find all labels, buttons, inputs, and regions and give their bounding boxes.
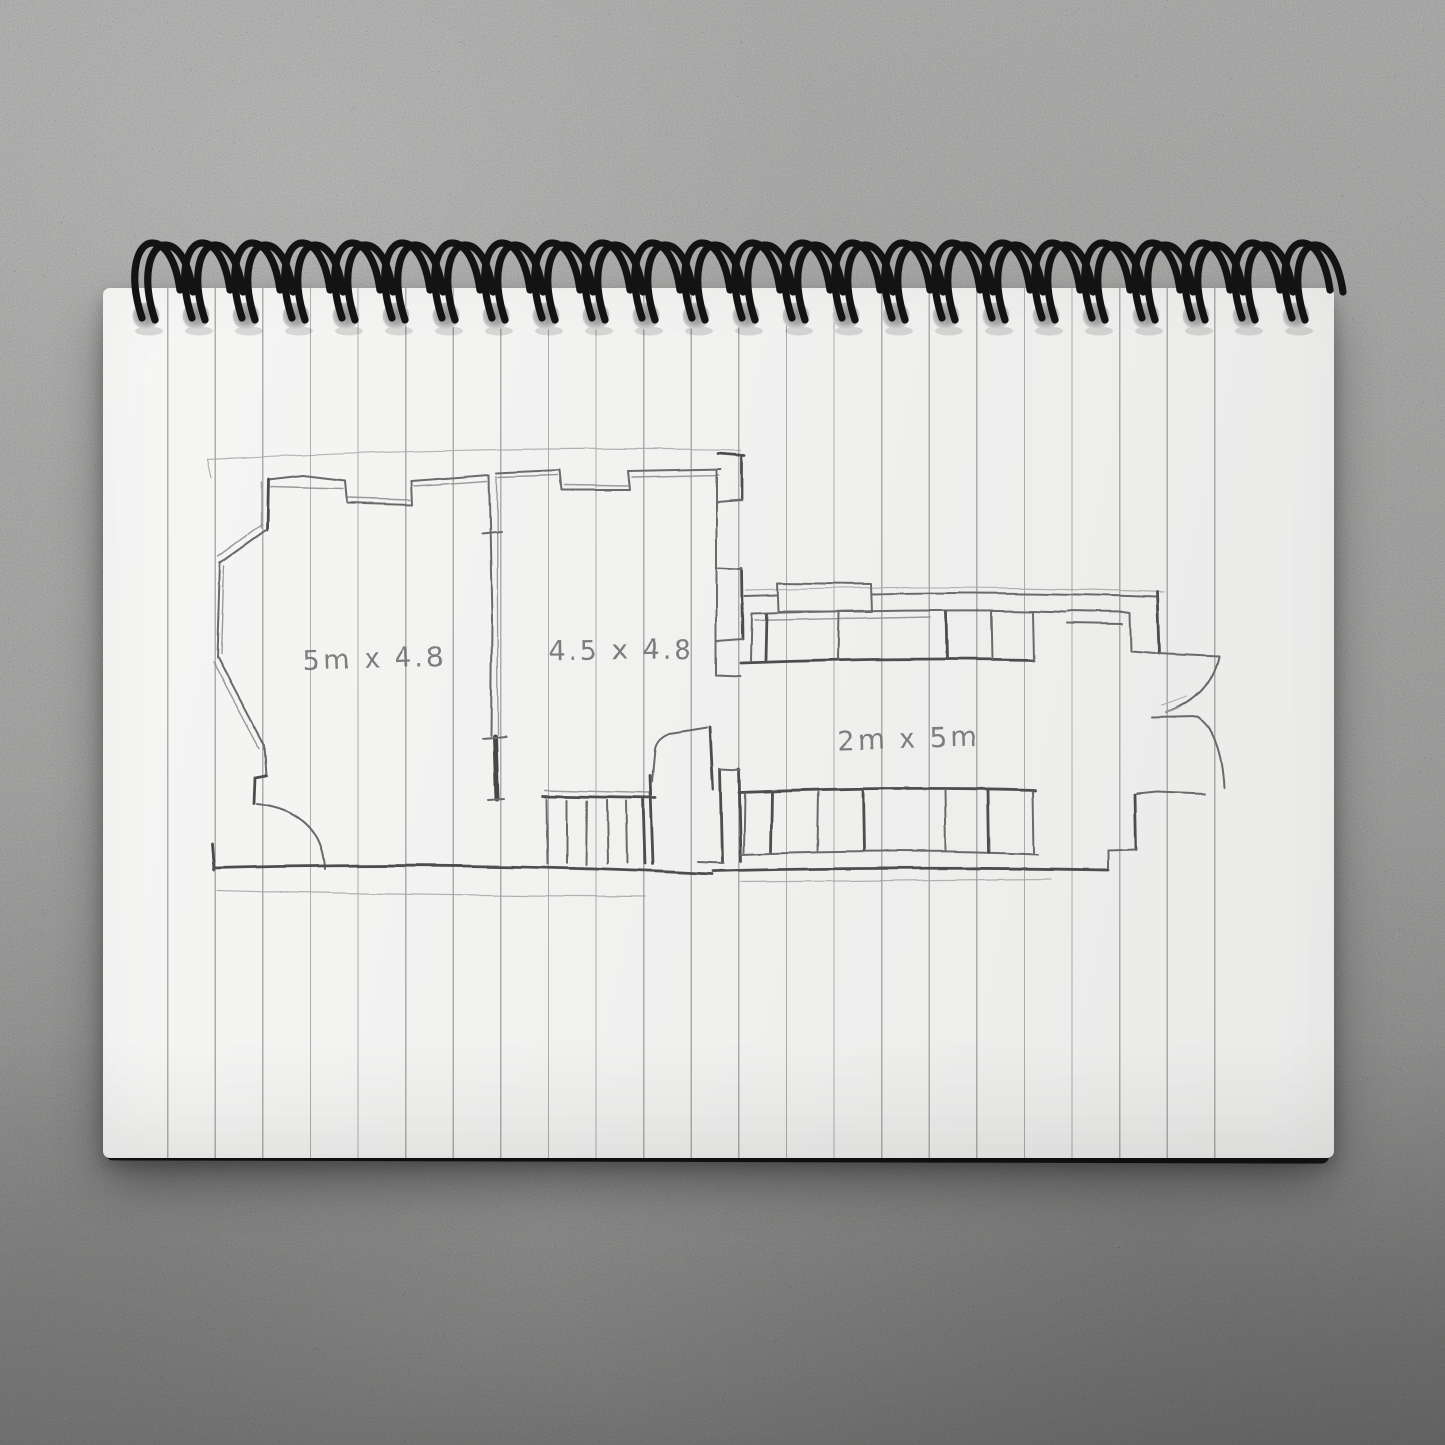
spiral-binding — [0, 0, 1445, 1445]
notebook-photo-scene: 5m x 4.8 4.5 x 4.8 2m x 5m — [0, 0, 1445, 1445]
